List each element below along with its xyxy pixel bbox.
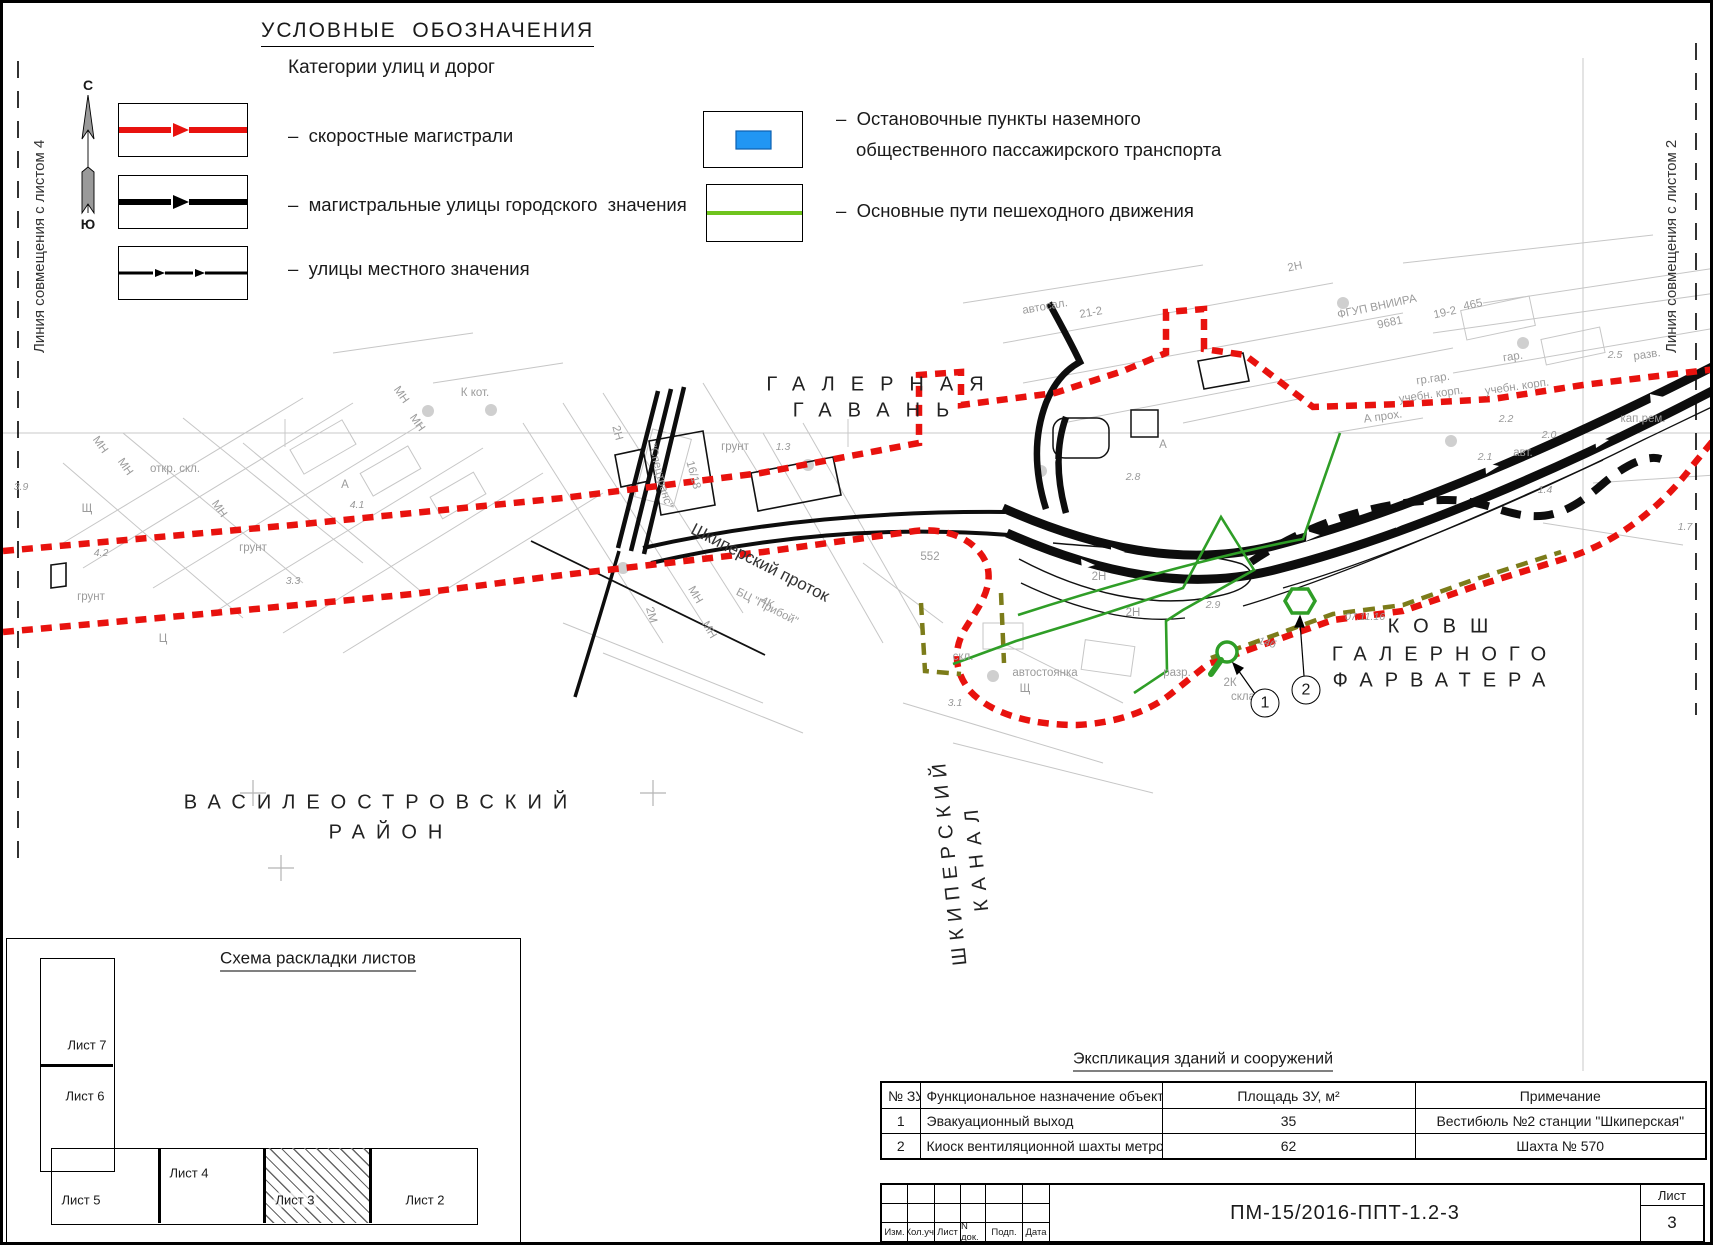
legend-swatch-highway [118, 103, 248, 157]
map-label: ВАСИЛЕОСТРОВСКИЙ [184, 792, 578, 815]
map-label: ГАЛЕРНАЯ [766, 374, 999, 397]
map-label: грунт [77, 591, 105, 603]
map-label: 2.2 [1499, 413, 1514, 425]
map-label: 3.3 [286, 575, 301, 587]
map-label: 2Н [1126, 607, 1141, 619]
map-label: грунт [721, 441, 749, 453]
compass-south-label: Ю [81, 216, 95, 232]
titleblock-cell [882, 1185, 908, 1204]
map-label: КОВШ [1388, 616, 1503, 639]
map-label: разр. [1163, 667, 1191, 679]
callout-circle-1: 1 [1251, 689, 1280, 718]
scheme-divider [40, 1064, 113, 1067]
map-label: 1.4 [1538, 484, 1553, 496]
map-label: РАЙОН [329, 822, 454, 845]
explication-cell: 2 [881, 1134, 920, 1160]
scheme-sheet-label: Лист 5 [59, 1193, 102, 1208]
titleblock-cell [986, 1204, 1023, 1223]
legend-item-label: – Остановочные пункты наземного обществе… [836, 103, 1276, 166]
map-label: 07.11.16 [1345, 611, 1385, 623]
scheme-sheet-label: Лист 4 [167, 1166, 210, 1181]
titleblock-cell [908, 1185, 935, 1204]
titleblock-cell-label: Подп. [986, 1223, 1023, 1241]
pedestrian-paths [953, 433, 1340, 693]
map-label: откр. скл. [150, 463, 200, 475]
legend-subtitle: Категории улиц и дорог [288, 57, 495, 79]
vent-shaft-icon [1285, 589, 1315, 613]
map-label: ФАРВАТЕРА [1333, 670, 1558, 693]
titleblock-cell [935, 1185, 961, 1204]
map-label: 1.3 [776, 441, 791, 453]
map-label: кап.рем. [1621, 413, 1666, 425]
map-label: Ц [159, 633, 168, 645]
scheme-sheet-label: Лист 3 [273, 1193, 316, 1208]
red-line-icon [119, 104, 247, 156]
explication-cell: Киоск вентиляционной шахты метрополитена [920, 1134, 1162, 1160]
document-code: ПМ-15/2016-ППТ-1.2-3 [1050, 1185, 1641, 1241]
callout-circle-2: 2 [1292, 676, 1321, 705]
scheme-sheet-label: Лист 2 [403, 1193, 446, 1208]
explication-column-header: Функциональное назначение объекта [920, 1082, 1162, 1109]
map-label: 2.5 [1608, 349, 1623, 361]
north-arrow-icon [82, 95, 94, 213]
compass-north-label: С [83, 77, 93, 93]
explication-cell: Шахта № 570 [1415, 1134, 1706, 1160]
titleblock-cell [961, 1204, 986, 1223]
map-label: 2.1 [1478, 451, 1493, 463]
sheet-number-box: Лист 3 [1641, 1185, 1703, 1241]
titleblock-cell [935, 1204, 961, 1223]
sheet-number: 3 [1641, 1206, 1703, 1240]
map-label: 3.1 [948, 697, 963, 709]
explication-column-header: Примечание [1415, 1082, 1706, 1109]
titleblock-cell-label: Дата [1023, 1223, 1050, 1241]
legend-swatch-pedestrian [706, 184, 803, 242]
titleblock-cell [961, 1185, 986, 1204]
legend-item-label: – скоростные магистрали [288, 120, 638, 151]
black-line-icon [119, 176, 247, 228]
green-line-icon [707, 185, 802, 241]
titleblock-cell [1023, 1204, 1050, 1223]
sheet-scheme-title: Схема раскладки листов [220, 949, 416, 972]
map-label: К кот. [461, 387, 489, 399]
explication-cell: Эвакуационный выход [920, 1109, 1162, 1134]
legend-swatch-local-street [118, 246, 248, 300]
legend-item-label: – Основные пути пешеходного движения [836, 195, 1276, 226]
titleblock-cell-label: Изм. [882, 1223, 908, 1241]
titleblock-cell [908, 1204, 935, 1223]
map-label: 2К [1223, 677, 1236, 689]
legend-item-label: – магистральные улицы городского значени… [288, 189, 748, 220]
explication-cell: Вестибюль №2 станции "Шкиперская" [1415, 1109, 1706, 1134]
titleblock-cell [1023, 1185, 1050, 1204]
legend-item-label: – улицы местного значения [288, 253, 638, 284]
map-label: 1.7 [1678, 521, 1693, 533]
scheme-sheet-label: Лист 6 [63, 1089, 106, 1104]
explication-column-header: № ЗУ [881, 1082, 920, 1109]
map-label: 2.8 [1126, 471, 1141, 483]
explication-row: 1Эвакуационный выход35Вестибюль №2 станц… [881, 1109, 1706, 1134]
legend-swatch-city-street [118, 175, 248, 229]
map-label: 4.1 [350, 499, 365, 511]
map-label: Щ [82, 503, 93, 515]
scheme-sheet-label: Лист 7 [65, 1038, 108, 1053]
map-label: 4.2 [94, 547, 109, 559]
map-label: грунт [239, 542, 267, 554]
map-label: скл. [953, 651, 974, 663]
plan-sheet: УСЛОВНЫЕ ОБОЗНАЧЕНИЯ Категории улиц и до… [0, 0, 1713, 1245]
map-label: Щ [1020, 683, 1031, 695]
explication-cell: 62 [1162, 1134, 1415, 1160]
map-label: 2.0 [1542, 429, 1557, 441]
map-label: 2.9 [1206, 599, 1221, 611]
map-label: 3.9 [14, 481, 29, 493]
explication-row: 2Киоск вентиляционной шахты метрополитен… [881, 1134, 1706, 1160]
match-line-label-right: Линия совмещения с листом 2 [1663, 93, 1680, 353]
thin-dash-line-icon [119, 247, 247, 299]
transit-stop-icon [704, 112, 802, 167]
match-line-label-left: Линия совмещения с листом 4 [31, 93, 48, 353]
map-label: А [341, 479, 349, 491]
titleblock-cell-label: N док. [961, 1223, 986, 1241]
map-label: автостоянка [1012, 667, 1077, 679]
title-block-grid: Изм.Кол.уч.ЛистN док.Подп.Дата [882, 1185, 1050, 1241]
legend-swatch-transit-stop [703, 111, 803, 168]
explication-cell: 1 [881, 1109, 920, 1134]
map-label: авт. [1513, 447, 1532, 459]
map-label: 552 [920, 551, 939, 563]
sheet-label: Лист [1641, 1185, 1703, 1206]
titleblock-cell [882, 1204, 908, 1223]
titleblock-cell-label: Лист [935, 1223, 961, 1241]
title-block: Изм.Кол.уч.ЛистN док.Подп.Дата ПМ-15/201… [880, 1183, 1705, 1243]
explication-title: Экспликация зданий и сооружений [1073, 1051, 1333, 1072]
map-label: ГАВАНЬ [793, 400, 965, 423]
legend-title: УСЛОВНЫЕ ОБОЗНАЧЕНИЯ [261, 19, 594, 47]
titleblock-cell-label: Кол.уч. [908, 1223, 935, 1241]
titleblock-cell [986, 1185, 1023, 1204]
scheme-current-sheet-hatch [263, 1148, 369, 1223]
explication-table: № ЗУФункциональное назначение объектаПло… [880, 1081, 1707, 1160]
explication-column-header: Площадь ЗУ, м² [1162, 1082, 1415, 1109]
map-label: А [1159, 439, 1167, 451]
map-label: 2Н [1092, 571, 1107, 583]
map-label: ГАЛЕРНОГО [1332, 644, 1558, 667]
explication-cell: 35 [1162, 1109, 1415, 1134]
